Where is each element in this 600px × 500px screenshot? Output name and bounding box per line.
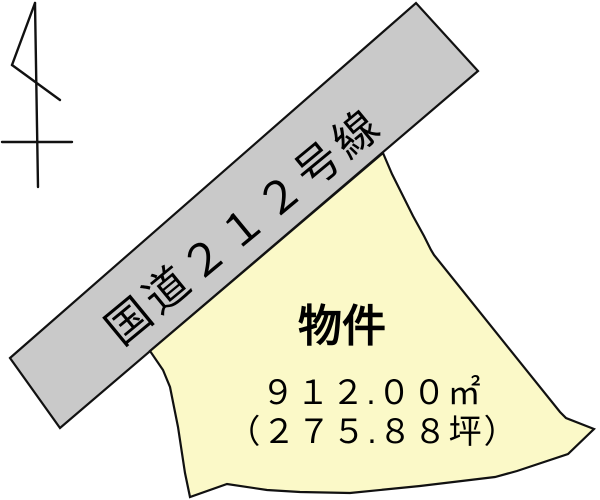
parcel-area-tsubo: （２７５.８８坪） bbox=[227, 413, 518, 450]
plot-map-svg: 国道２１２号線 物件 ９１２.００㎡ （２７５.８８坪） bbox=[0, 0, 600, 500]
parcel-area-m2: ９１２.００㎡ bbox=[261, 374, 482, 411]
parcel-label: 物件 bbox=[298, 302, 386, 351]
plot-map: 国道２１２号線 物件 ９１２.００㎡ （２７５.８８坪） bbox=[0, 0, 600, 500]
